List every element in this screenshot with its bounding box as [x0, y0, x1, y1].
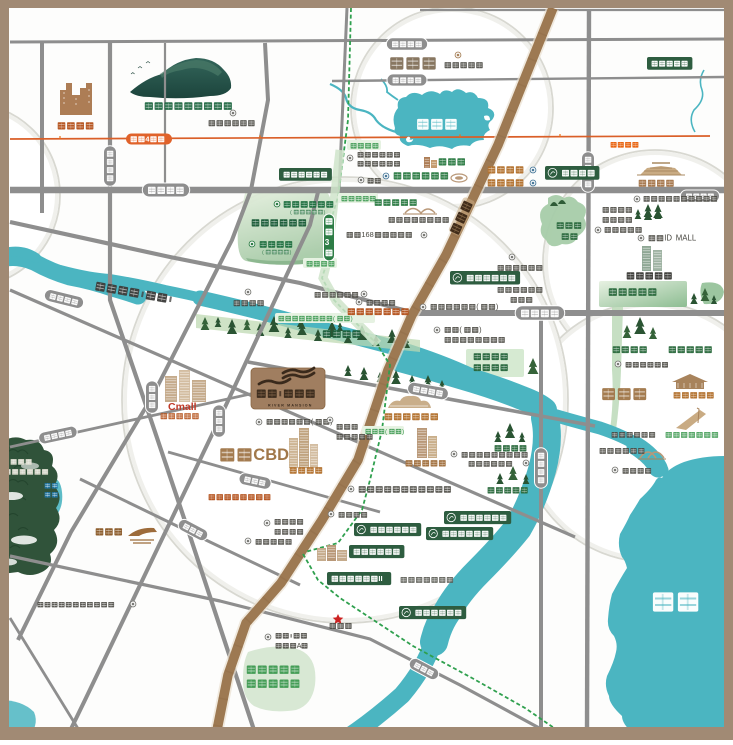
svg-text:A: A [297, 643, 302, 650]
svg-text:RIVER MANSION: RIVER MANSION [268, 404, 313, 408]
svg-text:): ) [402, 428, 404, 435]
svg-text:): ) [479, 325, 481, 334]
svg-text:ID: ID [664, 234, 672, 243]
svg-text:): ) [324, 210, 326, 216]
svg-text:MALL: MALL [676, 234, 697, 243]
svg-text:(: ( [262, 250, 264, 256]
svg-text:3: 3 [325, 238, 330, 247]
svg-text:CBD: CBD [253, 446, 289, 464]
svg-text:II: II [378, 574, 382, 583]
svg-text:): ) [496, 302, 498, 311]
svg-text:(: ( [290, 210, 292, 216]
svg-text:168: 168 [361, 230, 373, 239]
svg-text:Cmall: Cmall [168, 401, 197, 413]
svg-text:): ) [351, 316, 353, 323]
svg-text:): ) [290, 250, 292, 256]
